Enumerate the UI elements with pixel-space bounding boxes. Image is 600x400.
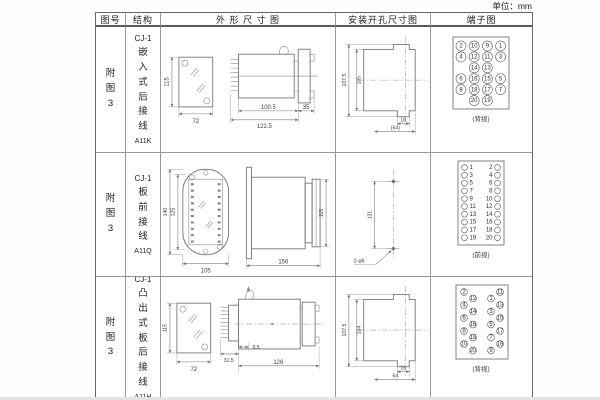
svg-text:16: 16 <box>486 219 493 225</box>
svg-text:10: 10 <box>486 196 493 202</box>
terminal-cell-row2: 1357911131517192468101214161820 (前视) <box>431 153 532 277</box>
terminal-diagram-a11h: 2124146168181020111133155177199 (背视) <box>431 277 532 399</box>
unit-label: 单位：mm <box>95 0 534 12</box>
svg-text:4: 4 <box>489 172 493 178</box>
svg-text:17: 17 <box>484 87 491 93</box>
svg-text:15: 15 <box>497 315 504 321</box>
structure-cell-row2: CJ-1 板前接线 A11Q <box>126 153 161 277</box>
dim-label: 131 <box>368 210 374 219</box>
outline-drawing-a11h: 115 72 31.5 9.5 126 <box>161 277 335 399</box>
outline-cell-row2: 140 125 105 156 115 <box>161 153 336 277</box>
manual-page: 单位：mm 图号 结构 外 形 尺 寸 图 安装开孔尺寸图 端子图 附图3 CJ… <box>0 0 600 400</box>
install-cell-row3: 107.5 104 16 64 <box>336 277 431 399</box>
model-code: A11Q <box>134 248 151 255</box>
dim-label: 9.5 <box>252 345 259 351</box>
svg-text:18: 18 <box>486 227 493 233</box>
svg-text:11: 11 <box>497 289 504 295</box>
dim-label: 115 <box>162 324 168 332</box>
model-label: CJ-1 <box>135 277 152 284</box>
dim-label: 115 <box>319 208 325 216</box>
svg-text:13: 13 <box>470 211 477 217</box>
dim-label: 100.5 <box>261 104 277 110</box>
install-cell-row2: 131 2-φ6 <box>336 153 431 277</box>
dim-label: 35 <box>303 104 310 110</box>
terminal-diagram-a11q: 1357911131517192468101214161820 (前视) <box>431 153 532 277</box>
dim-label: 140 <box>163 207 169 216</box>
svg-text:20: 20 <box>486 235 493 241</box>
svg-text:15: 15 <box>470 219 477 225</box>
hole-spec-label: 2-φ6 <box>354 258 365 264</box>
svg-text:2: 2 <box>489 165 493 171</box>
svg-text:6: 6 <box>489 180 493 186</box>
header-install: 安装开孔尺寸图 <box>336 13 431 27</box>
model-code: A11K <box>135 138 152 145</box>
dim-label: 126 <box>273 360 284 366</box>
install-drawing-a11h: 107.5 104 16 64 <box>336 277 430 399</box>
svg-text:5: 5 <box>470 180 474 186</box>
fig-cell-row2: 附图3 <box>96 153 126 277</box>
outline-cell-row3: 115 72 31.5 9.5 126 <box>161 277 336 399</box>
dim-label: 105 <box>357 75 363 84</box>
svg-text:9: 9 <box>470 196 474 202</box>
dim-label: 16 <box>400 117 406 123</box>
install-drawing-a11q: 131 2-φ6 <box>336 153 430 277</box>
fig-number: 附图3 <box>105 316 115 360</box>
svg-text:19: 19 <box>497 341 504 347</box>
dim-label: 64 <box>393 374 399 380</box>
dim-label: 156 <box>278 259 289 265</box>
svg-text:11: 11 <box>484 54 491 60</box>
dim-label: 104 <box>357 326 363 335</box>
svg-text:11: 11 <box>470 204 477 210</box>
svg-text:8: 8 <box>489 188 493 194</box>
svg-text:20: 20 <box>470 348 477 354</box>
svg-text:14: 14 <box>486 211 493 217</box>
svg-text:16: 16 <box>470 322 477 328</box>
header-outline: 外 形 尺 寸 图 <box>161 13 336 27</box>
svg-text:12: 12 <box>470 296 477 302</box>
svg-text:18: 18 <box>470 335 477 341</box>
dimension-table: 图号 结构 外 形 尺 寸 图 安装开孔尺寸图 端子图 附图3 CJ-1 嵌入式… <box>95 12 533 400</box>
svg-text:18: 18 <box>471 87 478 93</box>
dim-label: 115 <box>164 76 170 86</box>
dim-label: 16 <box>400 366 406 372</box>
header-structure: 结构 <box>126 13 161 27</box>
svg-text:16: 16 <box>471 76 478 82</box>
svg-text:12: 12 <box>471 54 478 60</box>
structure-name: 板前接线 <box>138 186 148 245</box>
terminal-diagram-a11k: 2109141211314136161558181772019 (背视) <box>431 27 532 153</box>
view-label: (背视) <box>472 114 489 123</box>
fig-cell-row1: 附图3 <box>96 27 126 153</box>
svg-text:3: 3 <box>470 172 474 178</box>
fig-number: 附图3 <box>105 192 115 236</box>
svg-text:1: 1 <box>470 165 474 171</box>
svg-text:13: 13 <box>484 65 491 71</box>
dim-label: 72 <box>192 118 199 124</box>
view-label: (前视) <box>472 250 489 259</box>
dim-label: (64) <box>391 125 400 131</box>
svg-text:10: 10 <box>461 341 468 347</box>
terminal-cell-row1: 2109141211314136161558181772019 (背视) <box>431 27 532 153</box>
header-fig: 图号 <box>96 13 126 27</box>
dim-label: 72 <box>190 367 197 373</box>
model-label: CJ-1 <box>135 34 152 43</box>
dim-label: 105 <box>201 268 212 274</box>
outline-drawing-a11q: 140 125 105 156 115 <box>161 153 335 277</box>
fig-number: 附图3 <box>105 67 115 111</box>
svg-text:17: 17 <box>470 227 477 233</box>
header-terminal: 端子图 <box>431 13 532 27</box>
svg-text:17: 17 <box>497 328 504 334</box>
svg-text:10: 10 <box>471 43 478 49</box>
terminal-cell-row3: 2124146168181020111133155177199 (背视) <box>431 277 532 399</box>
svg-text:19: 19 <box>470 235 477 241</box>
outline-drawing-a11k: 115 72 100.5 35 122.5 <box>161 27 335 153</box>
svg-text:7: 7 <box>470 188 474 194</box>
dim-label: 122.5 <box>257 123 273 129</box>
dim-label: 31.5 <box>224 358 234 364</box>
fig-cell-row3: 附图3 <box>96 277 126 399</box>
view-label: (背视) <box>472 364 489 373</box>
dim-label: 107.5 <box>342 73 348 86</box>
svg-text:13: 13 <box>497 302 504 308</box>
outline-cell-row1: 115 72 100.5 35 122.5 <box>161 27 336 153</box>
install-cell-row1: 107.5 105 16 (64) <box>336 27 431 153</box>
svg-text:12: 12 <box>486 204 493 210</box>
svg-text:15: 15 <box>484 76 491 82</box>
structure-name: 凸出式板后接线 <box>138 287 148 390</box>
model-label: CJ-1 <box>135 174 152 183</box>
structure-cell-row1: CJ-1 嵌入式后接线 A11K <box>126 27 161 153</box>
dim-label: 125 <box>170 207 176 216</box>
svg-text:19: 19 <box>484 98 491 104</box>
svg-text:20: 20 <box>471 98 478 104</box>
svg-text:14: 14 <box>471 65 478 71</box>
dim-label: 107.5 <box>342 324 348 337</box>
svg-text:14: 14 <box>470 309 477 315</box>
structure-cell-row3: CJ-1 凸出式板后接线 A11H <box>126 277 161 399</box>
structure-name: 嵌入式后接线 <box>138 46 148 134</box>
install-drawing-a11k: 107.5 105 16 (64) <box>336 27 430 153</box>
